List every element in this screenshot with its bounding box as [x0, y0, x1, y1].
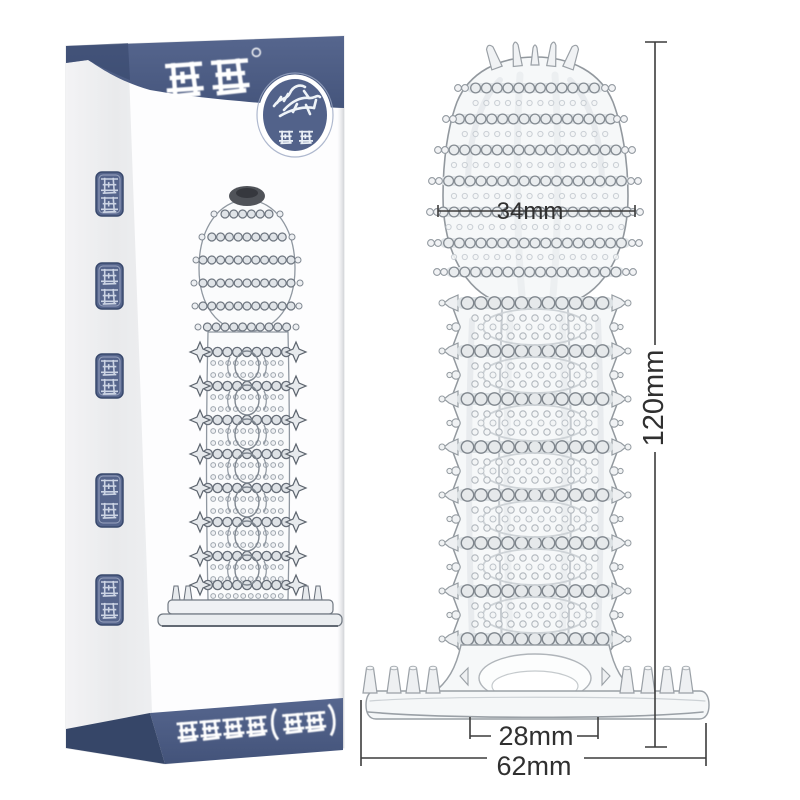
- svg-text:34mm: 34mm: [497, 198, 564, 225]
- svg-text:120mm: 120mm: [638, 350, 670, 447]
- svg-text:28mm: 28mm: [498, 721, 573, 751]
- svg-text:62mm: 62mm: [496, 751, 571, 781]
